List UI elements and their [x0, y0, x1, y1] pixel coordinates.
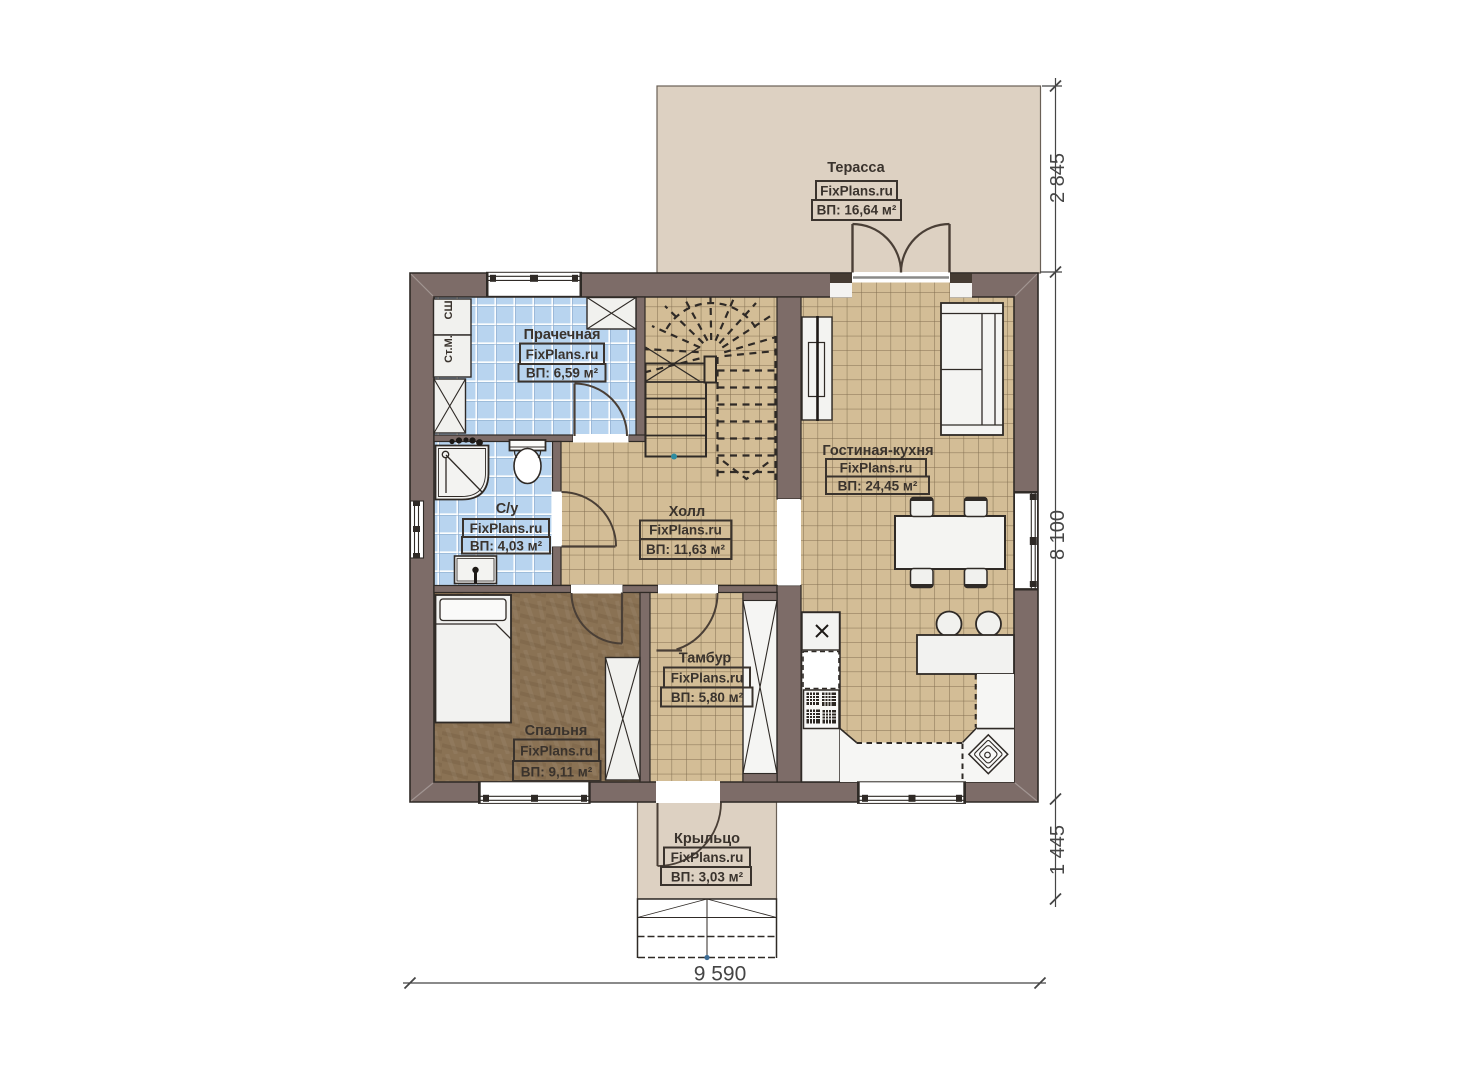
svg-text:Терасса: Терасса — [827, 160, 885, 176]
svg-text:FixPlans.ru: FixPlans.ru — [671, 671, 744, 686]
svg-text:Крыльцо: Крыльцо — [674, 831, 740, 847]
svg-text:Тамбур: Тамбур — [679, 651, 732, 667]
svg-text:С/у: С/у — [496, 501, 519, 517]
svg-text:ВП: 16,64 м²: ВП: 16,64 м² — [817, 203, 897, 218]
svg-text:Ст.М.: Ст.М. — [443, 335, 455, 363]
svg-text:ВП: 24,45 м²: ВП: 24,45 м² — [838, 479, 918, 494]
svg-text:ВП: 9,11 м²: ВП: 9,11 м² — [521, 765, 593, 780]
svg-text:Холл: Холл — [669, 504, 705, 520]
svg-text:8 100: 8 100 — [1047, 510, 1069, 560]
svg-text:FixPlans.ru: FixPlans.ru — [526, 347, 599, 362]
svg-text:ВП: 3,03 м²: ВП: 3,03 м² — [671, 870, 744, 885]
svg-text:FixPlans.ru: FixPlans.ru — [840, 461, 913, 476]
svg-text:FixPlans.ru: FixPlans.ru — [820, 184, 893, 199]
svg-text:9 590: 9 590 — [694, 963, 747, 986]
svg-text:2 845: 2 845 — [1047, 153, 1069, 203]
svg-text:Спальня: Спальня — [525, 723, 588, 739]
svg-text:ВП: 11,63 м²: ВП: 11,63 м² — [646, 542, 725, 557]
svg-text:FixPlans.ru: FixPlans.ru — [649, 523, 722, 538]
svg-text:ВП: 4,03 м²: ВП: 4,03 м² — [470, 539, 543, 554]
svg-text:FixPlans.ru: FixPlans.ru — [470, 521, 543, 536]
svg-text:Гостиная-кухня: Гостиная-кухня — [822, 443, 933, 459]
svg-text:FixPlans.ru: FixPlans.ru — [520, 744, 593, 759]
svg-text:1 445: 1 445 — [1047, 825, 1069, 875]
svg-text:ВП: 6,59 м²: ВП: 6,59 м² — [526, 366, 599, 381]
svg-text:ВП: 5,80 м²: ВП: 5,80 м² — [671, 690, 744, 705]
svg-text:СШ: СШ — [443, 301, 455, 320]
svg-text:Прачечная: Прачечная — [524, 327, 601, 343]
svg-text:FixPlans.ru: FixPlans.ru — [671, 850, 744, 865]
